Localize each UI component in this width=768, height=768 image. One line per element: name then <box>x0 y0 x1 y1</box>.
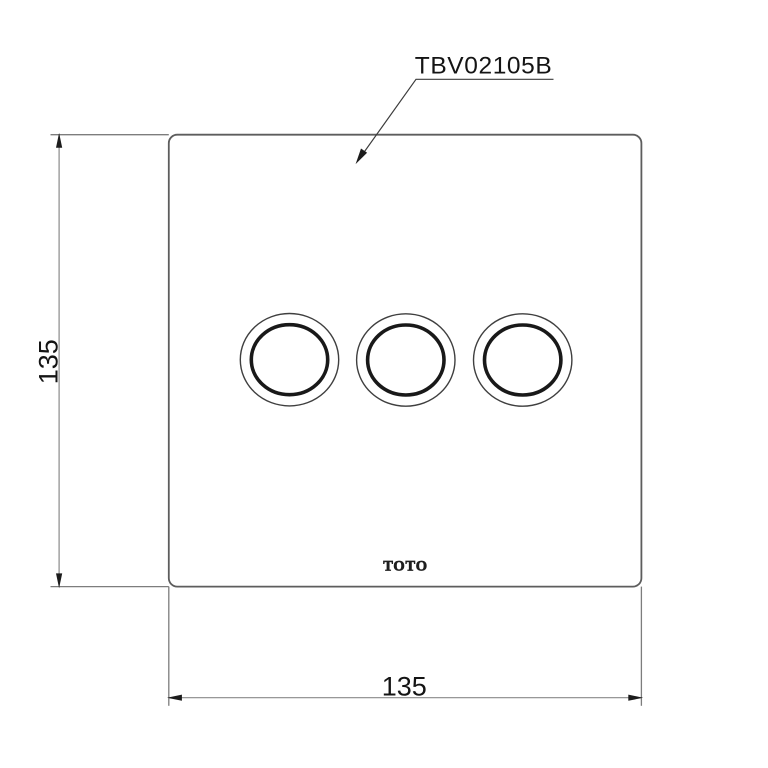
svg-text:135: 135 <box>382 671 427 701</box>
svg-text:TBV02105B: TBV02105B <box>415 53 553 80</box>
svg-text:TOTO: TOTO <box>383 558 428 574</box>
svg-text:135: 135 <box>34 339 64 384</box>
